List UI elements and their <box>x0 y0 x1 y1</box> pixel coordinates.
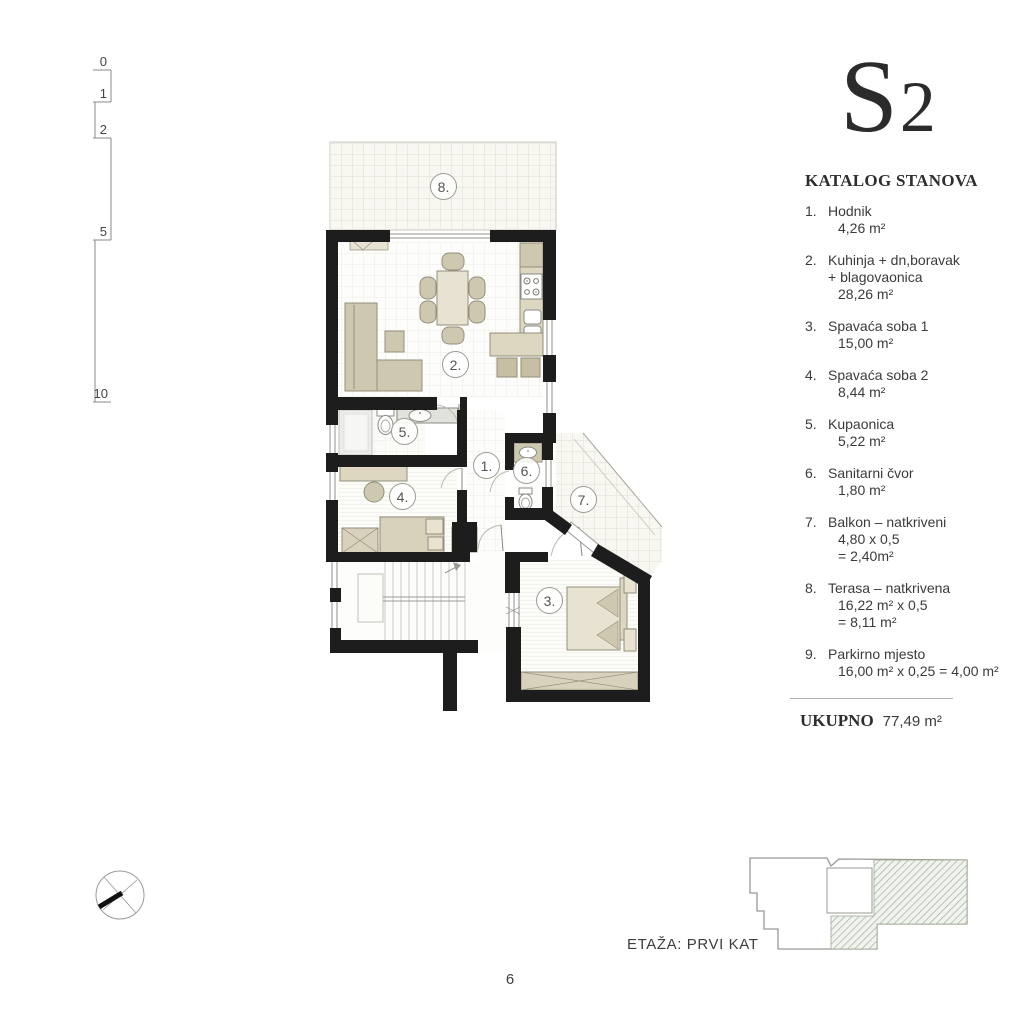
item-number: 5. <box>805 416 823 450</box>
item-number: 8. <box>805 580 823 631</box>
item-number: 2. <box>805 252 823 303</box>
item-number: 7. <box>805 514 823 565</box>
item-area: 8,44 m² <box>828 384 928 401</box>
item-label: Balkon – natkriveni <box>828 514 946 531</box>
item-label: Kupaonica <box>828 416 894 433</box>
total-label: UKUPNO <box>800 711 874 731</box>
room-label-terrace: 8. <box>430 173 457 200</box>
floor-level-label: ETAŽA: PRVI KAT <box>627 936 759 953</box>
item-label: Spavaća soba 2 <box>828 367 928 384</box>
item-area: 28,26 m² <box>828 286 960 303</box>
item-label: Spavaća soba 1 <box>828 318 928 335</box>
item-number: 9. <box>805 646 823 680</box>
scale-label-5: 5 <box>100 224 107 239</box>
total-row: UKUPNO 77,49 m² <box>800 711 1020 731</box>
catalog-item-5: 5. Kupaonica 5,22 m² <box>805 416 1020 450</box>
item-area: 1,80 m² <box>828 482 914 499</box>
scale-label-2: 2 <box>100 122 107 137</box>
item-label: + blagovaonica <box>828 269 960 286</box>
item-label: Terasa – natkrivena <box>828 580 950 597</box>
room-label-bedroom2: 4. <box>389 483 416 510</box>
catalog-item-6: 6. Sanitarni čvor 1,80 m² <box>805 465 1020 499</box>
item-area: = 2,40m² <box>828 548 946 565</box>
compass-icon <box>96 871 144 919</box>
item-area: = 8,11 m² <box>828 614 950 631</box>
total-value: 77,49 m² <box>883 713 942 730</box>
item-number: 3. <box>805 318 823 352</box>
item-area: 16,22 m² x 0,5 <box>828 597 950 614</box>
scale-label-1: 1 <box>100 86 107 101</box>
item-label: Kuhinja + dn,boravak <box>828 252 960 269</box>
total-divider <box>790 698 953 699</box>
item-number: 6. <box>805 465 823 499</box>
item-label: Hodnik <box>828 203 885 220</box>
catalog-title: KATALOG STANOVA <box>805 171 1020 191</box>
room-label-wc: 6. <box>513 457 540 484</box>
item-area: 15,00 m² <box>828 335 928 352</box>
floor-plan <box>326 142 662 711</box>
item-area: 4,26 m² <box>828 220 885 237</box>
scale-bar-labels: 0 1 2 5 10 <box>94 54 108 401</box>
catalog-page: 0 1 2 5 10 <box>0 0 1024 1024</box>
item-area: 4,80 x 0,5 <box>828 531 946 548</box>
catalog-item-9: 9. Parkirno mjesto 16,00 m² x 0,25 = 4,0… <box>805 646 1020 680</box>
catalog-panel: S2 KATALOG STANOVA 1. Hodnik 4,26 m² 2. … <box>790 42 1020 731</box>
room-label-bedroom1: 3. <box>536 587 563 614</box>
scale-label-10: 10 <box>94 386 108 401</box>
catalog-item-8: 8. Terasa – natkrivena 16,22 m² x 0,5 = … <box>805 580 1020 631</box>
catalog-item-3: 3. Spavaća soba 1 15,00 m² <box>805 318 1020 352</box>
page-number: 6 <box>498 971 522 988</box>
catalog-item-4: 4. Spavaća soba 2 8,44 m² <box>805 367 1020 401</box>
item-number: 1. <box>805 203 823 237</box>
room-label-bathroom: 5. <box>391 418 418 445</box>
item-label: Parkirno mjesto <box>828 646 999 663</box>
scale-label-0: 0 <box>100 54 107 69</box>
site-plan <box>750 858 967 949</box>
catalog-item-2: 2. Kuhinja + dn,boravak + blagovaonica 2… <box>805 252 1020 303</box>
unit-code: S2 <box>840 42 1020 151</box>
item-label: Sanitarni čvor <box>828 465 914 482</box>
catalog-items: 1. Hodnik 4,26 m² 2. Kuhinja + dn,borava… <box>805 203 1020 680</box>
item-area: 16,00 m² x 0,25 = 4,00 m² <box>828 663 999 680</box>
item-area: 5,22 m² <box>828 433 894 450</box>
item-number: 4. <box>805 367 823 401</box>
room-label-balcony: 7. <box>570 486 597 513</box>
room-label-hall: 1. <box>473 452 500 479</box>
room-label-living: 2. <box>442 351 469 378</box>
catalog-item-1: 1. Hodnik 4,26 m² <box>805 203 1020 237</box>
catalog-item-7: 7. Balkon – natkriveni 4,80 x 0,5 = 2,40… <box>805 514 1020 565</box>
